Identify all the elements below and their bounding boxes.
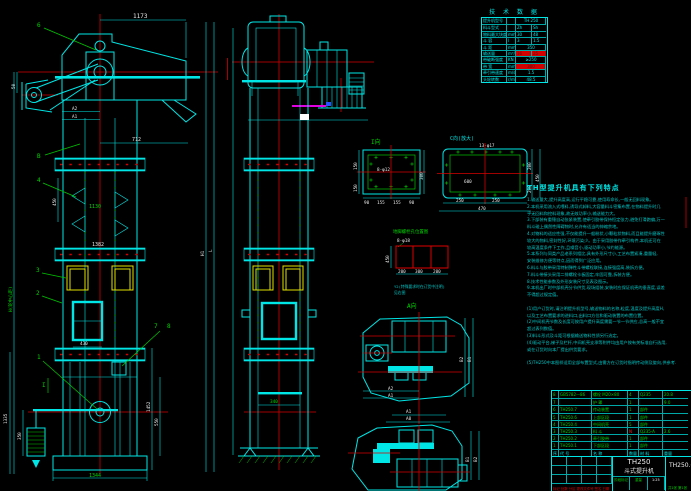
bom-cell (663, 405, 688, 412)
part-label-1: 1 (37, 354, 41, 361)
dim-a1: A1 (72, 114, 78, 120)
note-line: 8.技术性能参数及外形安装尺寸见表及图示。 (527, 279, 690, 286)
bom-cell: 部件 (639, 441, 663, 448)
dim-430: 430 (80, 341, 88, 347)
bom-row: 7护 罩19.0 (552, 398, 691, 405)
note-line: 以及工艺布置要求的进料口,出料口方位和驱动装置的布置位置。 (527, 313, 690, 320)
dim-250-b: 250 (492, 198, 500, 204)
note-line: 安装维修方便等特点,因而得到广泛应用。 (527, 258, 690, 265)
dim-155-b: 155 (393, 200, 401, 206)
machine-name: 斗式提升机 (613, 467, 665, 476)
bom-cell: 1 (628, 405, 639, 412)
bom-cell: 5 (552, 413, 559, 420)
anchor-hole-label: 8-φ18 (397, 238, 410, 244)
dim-b2: B2 (459, 356, 465, 362)
drawing-number: TH250.0 (669, 462, 691, 469)
dim-200-anchor-a: 200 (398, 269, 406, 275)
bom-cell: 20.8 (663, 391, 688, 398)
highlighted-dim (300, 114, 309, 120)
bom-header-cell: 材 料 (639, 449, 663, 456)
note-line (527, 353, 690, 360)
axis-label-h1: H1 (200, 250, 206, 256)
dim-a0: A0 (406, 416, 412, 422)
dim-150-b: 150 (353, 184, 359, 192)
note-line: 不得超过规定值。 (527, 292, 690, 299)
sheet-info: 共1张 第1张 (668, 485, 687, 490)
blue-marker (326, 102, 331, 106)
dim-1335: 1335 (3, 413, 9, 424)
bom-header-cell: 代 号 (559, 449, 592, 456)
dim-a2-plan: A2 (388, 386, 394, 392)
bom-cell: 9.0 (663, 398, 688, 405)
bom-row: 1TH250.1下部区段1部件 (552, 441, 691, 448)
bom-cell: 7 (552, 398, 559, 405)
note-line: 6.料斗与胶带采用特制弹性斗带螺栓联接,连接强度高,装拆方便。 (527, 265, 690, 272)
bom-cell: 1 (628, 413, 639, 420)
dim-base-width: 1344 (89, 473, 101, 479)
detail-c-view: C向(放大) 13-φ17 600 200 200 450 250 250 47… (437, 135, 541, 212)
note-line: (1)用户订货时,请注明提升机型号,输送物料的名称,粒度,温度及提升高度H, (527, 306, 690, 313)
anchor-detail-title: 地脚螺栓孔位置图 (393, 228, 429, 235)
notes-lines: 1.输送量大,提升高度高,运行平稳可靠,使用寿命长,一般无回料现象。2.本机采用… (527, 197, 690, 367)
stage-label: 阶段标记 (613, 477, 630, 490)
bom-cell: 1 (552, 441, 559, 448)
technical-data-table: 技 术 数 据 提升机型号TH 250料斗型式ZhSh物料最大块度mm3048斗… (481, 8, 548, 83)
dim-90-a: 90 (364, 200, 370, 206)
anchor-note-2: 见右图 (394, 290, 406, 295)
detail-i-view: I向 8-φ12 150 150 300 90 155 155 90 (353, 138, 426, 206)
title-block: 标记 处数 分区 更改文件号 签名 日期 TH250 斗式提升机 阶段标记 重量… (551, 456, 691, 491)
bom-rows: 8GB5782—86螺栓 M20×804Q23520.87护 罩19.06TH2… (552, 391, 691, 449)
bom-cell: N (628, 427, 639, 434)
dim-a1-b: A1 (406, 409, 412, 415)
bom-cell (663, 420, 688, 427)
bom-cell: Q235-A (639, 427, 663, 434)
note-line (527, 299, 690, 306)
note-line: (5)TH250中本图样适用全部布置型式,由需方在订货时指明传动侧及旋向,供参考… (527, 360, 690, 367)
axis-label-l: L (208, 249, 214, 252)
dim-200-a: 200 (527, 162, 533, 170)
bom-cell: TH250.2 (559, 434, 592, 441)
bom-row: 2TH250.2牵引胶带1部件 (552, 434, 691, 441)
model-number: TH250 (613, 457, 665, 467)
dim-150-a: 150 (353, 162, 359, 170)
bom-cell: 6 (552, 405, 559, 412)
part-label-4: 4 (37, 177, 41, 184)
weight-label: 重量 (630, 477, 647, 490)
notes-block: TH型提升机具有下列特点 1.输送量大,提升高度高,运行平稳可靠,使用寿命长,一… (527, 183, 690, 367)
bom-cell: GB5782—86 (559, 391, 592, 398)
bom-row: 4TH250.4中间机壳5部件 (552, 420, 691, 427)
dim-712: 712 (132, 137, 141, 143)
dim-b1-bottom: B1 (465, 456, 471, 462)
bom-header: 序代 号名 称数量材 料重量 (552, 449, 691, 456)
bom-row: 6TH250.7传动装置1部件 (552, 405, 691, 412)
part-label-8: 8 (167, 323, 171, 330)
part-label-2: 2 (36, 290, 40, 297)
bom-cell (559, 398, 592, 405)
bom-cell: 护 罩 (592, 398, 628, 405)
bom-cell: 1 (628, 434, 639, 441)
dim-b1: B1 (467, 356, 473, 362)
bom-cell: 部件 (639, 420, 663, 427)
dim-600: 600 (464, 179, 472, 185)
dim-300-anchor: 300 (415, 269, 423, 275)
revision-row-labels: 标记 处数 分区 更改文件号 签名 日期 (553, 486, 611, 491)
dim-470: 470 (478, 206, 486, 212)
note-line: 3.下部装有重锤自动张紧装置,使牵引胶带保持恒定张力,避免打滑跑偏,万一 (527, 217, 690, 224)
dim-300: 300 (419, 172, 425, 180)
tech-table-row: 头轮转数r/min48.5 (482, 76, 547, 82)
bom-cell: 2.6 (663, 427, 688, 434)
dim-450-anchor: 450 (385, 255, 391, 263)
revision-grid: 标记 处数 分区 更改文件号 签名 日期 (552, 457, 613, 491)
dim-a1-plan: A1 (388, 393, 394, 399)
note-line: 超过表列数值。 (527, 326, 690, 333)
bom-cell: TH250.4 (559, 420, 592, 427)
dim-550: 550 (154, 418, 160, 426)
buckets-side (253, 266, 303, 290)
bom-row: 3TH250.3料 斗NQ235-A2.6 (552, 427, 691, 434)
dim-200-anchor-b: 200 (433, 269, 441, 275)
bom-cell: 螺栓 M20×80 (592, 391, 628, 398)
dim-450: 450 (52, 198, 58, 206)
bom-cell: 上部区段 (592, 413, 628, 420)
note-line: (3)料斗形式及斗距可根据输送物料性质另行选定。 (527, 333, 690, 340)
notes-title: TH型提升机具有下列特点 (527, 183, 690, 193)
bom-header-cell: 数量 (628, 449, 639, 456)
bom-cell: 2 (552, 434, 559, 441)
note-line: 4.对物料的适应性强,不仅能提升一般粉状,小颗粒状物料,而且能提升磨琢性 (527, 231, 690, 238)
bom-row: 8GB5782—86螺栓 M20×804Q23520.8 (552, 391, 691, 398)
front-view: 1173 6 50 A2 A1 712 B 4 450 1130 1382 3 … (3, 13, 228, 481)
bom-cell: 1 (628, 441, 639, 448)
bom-cell: 牵引胶带 (592, 434, 628, 441)
note-line: 7.料斗带接头采用二排螺栓卡板固定,牢固可靠,拆装方便。 (527, 272, 690, 279)
dim-250-a: 250 (456, 198, 464, 204)
note-line: 2.本机采用流入式喂料,诱导式卸料,大容量料斗密集布置,在物料提升时几 (527, 204, 690, 211)
bom-row: 5TH250.6上部区段1部件 (552, 413, 691, 420)
bom-cell: 部件 (639, 413, 663, 420)
bom-header-cell: 序 (552, 449, 559, 456)
cad-canvas[interactable]: 1173 6 50 A2 A1 712 B 4 450 1130 1382 3 … (0, 0, 691, 491)
part-label-7: 7 (154, 323, 158, 330)
section-mark-i: I (42, 382, 46, 389)
detail-i-hole-label: 8-φ12 (377, 167, 390, 173)
bom-cell: 下部区段 (592, 441, 628, 448)
bom-cell: 4 (628, 391, 639, 398)
technical-data-title: 技 术 数 据 (481, 8, 548, 17)
note-line: 料斗碰上偶然性障碍物时,允许有适当的伸缩余地。 (527, 224, 690, 231)
bom-cell (639, 398, 663, 405)
bom-cell: 4 (552, 420, 559, 427)
bom-header-cell: 名 称 (592, 449, 628, 456)
head-side (242, 16, 310, 96)
bom-cell: TH250.7 (559, 405, 592, 412)
note-line: 9.本机出厂时中部机壳分节供货,现场组装,安装时应保证机壳的垂直度,误差 (527, 285, 690, 292)
tech-table-rows: 提升机型号TH 250料斗型式ZhSh物料最大块度mm3048斗 容l31.5斗… (481, 17, 548, 83)
note-line: (4)驱动平台,梯子及栏杆,中间机壳支承等附件均由用户按有关标准自行选用, (527, 340, 690, 347)
bom-cell: TH250.3 (559, 427, 592, 434)
boot-section (27, 362, 147, 470)
dim-90-b: 90 (409, 200, 415, 206)
dim-top-width: 1173 (133, 13, 148, 20)
dim-155-a: 155 (377, 200, 385, 206)
bom-cell (663, 441, 688, 448)
tech-cell: 48.5 (516, 76, 546, 82)
bom-cell: 中间机壳 (592, 420, 628, 427)
bom-cell: TH250.1 (559, 441, 592, 448)
plan-view-top: A向 B2 B1 A2 A1 A1 A0 (358, 302, 473, 424)
scale-value: 1:25 (648, 477, 665, 490)
bom-cell: 传动装置 (592, 405, 628, 412)
note-line: 或在订货时向本厂提出供货要求。 (527, 347, 690, 354)
detail-i-title: I向 (371, 138, 381, 146)
dim-b2-bottom: B2 (473, 456, 479, 462)
detail-c-title: C向(放大) (450, 135, 474, 142)
anchor-bolt-detail: 地脚螺栓孔位置图 8-φ18 450 200 300 200 Y2(特殊要求时在… (385, 228, 448, 295)
bom-cell (663, 434, 688, 441)
inspection-door (73, 302, 102, 340)
note-line: 1.输送量大,提升高度高,运行平稳可靠,使用寿命长,一般无回料现象。 (527, 197, 690, 204)
side-view: 340 (232, 14, 374, 470)
tech-cell: 头轮转数 (482, 76, 507, 82)
tech-cell: r/min (507, 76, 516, 82)
dim-340: 340 (270, 399, 278, 405)
bom-cell: 5 (628, 420, 639, 427)
parts-list: 8GB5782—86螺栓 M20×804Q23520.87护 罩19.06TH2… (551, 390, 691, 457)
title-block-right: TH250.0 共1张 第1张 (666, 457, 691, 491)
drive-unit (292, 42, 366, 108)
bom-cell: Q235 (639, 391, 663, 398)
detail-c-hole-label: 13-φ17 (479, 143, 495, 149)
stage-strip: 阶段标记 重量 1:25 (613, 476, 665, 490)
plan-view-title: A向 (407, 302, 417, 310)
plan-view-bottom: B1 B2 (348, 425, 479, 491)
note-line: (2)中间机壳节数及长度可按用户提升高度需要一节一节供应,总高一般不宜 (527, 319, 690, 326)
view-mark-b: B (37, 153, 41, 160)
bom-cell: 3 (552, 427, 559, 434)
bom-header-cell: 重量 (663, 449, 688, 456)
dim-450-c: 450 (535, 174, 541, 182)
title-block-center: TH250 斗式提升机 阶段标记 重量 1:25 (613, 457, 666, 491)
dim-350: 350 (17, 432, 23, 440)
dim-1452: 1452 (146, 401, 152, 412)
note-line: 较高温度条件下工作,且噪音小,驱动功率小,节约能源。 (527, 245, 690, 252)
bom-cell: 1 (628, 398, 639, 405)
note-line: 较大的物料,密封性好,环境污染少。由于采用胶带作牵引构件,本机还可在 (527, 238, 690, 245)
bom-cell: 部件 (639, 405, 663, 412)
axis-label-h: H(轮中心距) (7, 287, 14, 313)
part-label-6: 6 (37, 22, 41, 29)
dim-1130: 1130 (89, 204, 101, 210)
bom-cell: 料 斗 (592, 427, 628, 434)
magenta-line (292, 105, 326, 107)
part-label-3: 3 (36, 267, 40, 274)
bom-cell (663, 413, 688, 420)
anchor-note-1: Y2(特殊要求时在订货中注明) (394, 284, 445, 289)
note-line: 乎无回料和挖料现象,故无效功率小,输送能力大。 (527, 211, 690, 218)
dim-1382: 1382 (92, 242, 104, 248)
dim-a2: A2 (72, 106, 78, 112)
bom-cell: 部件 (639, 434, 663, 441)
head-section (22, 34, 200, 122)
bom-cell: 8 (552, 391, 559, 398)
side-view-dimensions (233, 28, 368, 455)
bom-cell: TH250.6 (559, 413, 592, 420)
note-line: 5.本系列与同类产品老系列相比,具有外形尺寸小,工艺布置紧凑,重量轻, (527, 251, 690, 258)
